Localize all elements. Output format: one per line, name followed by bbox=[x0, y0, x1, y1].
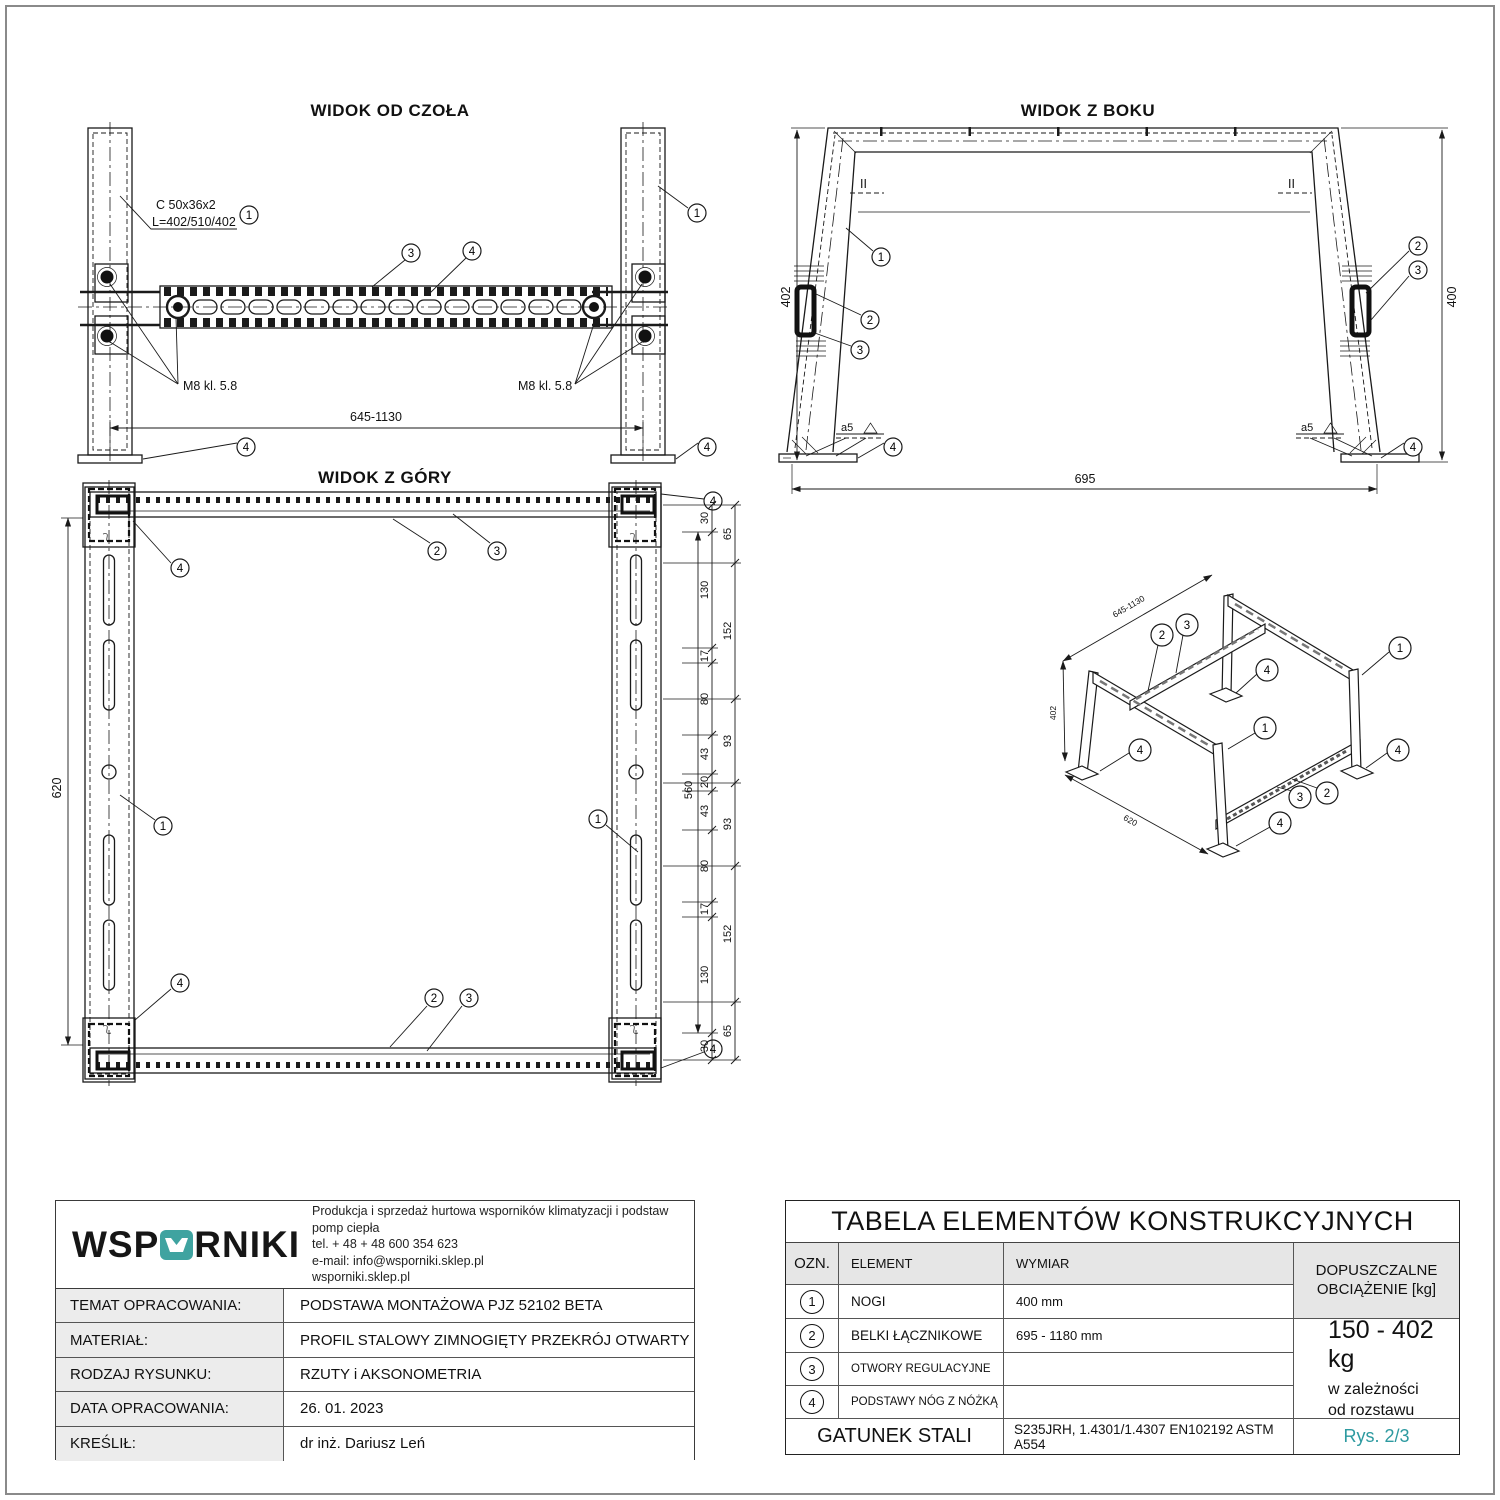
top-upper-beam bbox=[90, 492, 656, 517]
top-lower-beam bbox=[90, 1048, 656, 1073]
svg-text:4: 4 bbox=[1395, 745, 1402, 757]
load-note-1: w zależności bbox=[1328, 1380, 1419, 1401]
axo-rail-left bbox=[1093, 672, 1217, 756]
svg-text:4: 4 bbox=[1137, 745, 1144, 757]
svg-text:645-1130: 645-1130 bbox=[350, 410, 402, 424]
callout-2-side-right: 2 bbox=[1409, 237, 1427, 255]
front-view-title: WIDOK OD CZOŁA bbox=[310, 101, 469, 120]
svg-text:3: 3 bbox=[494, 546, 500, 558]
svg-text:4: 4 bbox=[469, 246, 476, 258]
svg-text:80: 80 bbox=[699, 693, 711, 705]
callout-2-top-upper: 2 bbox=[428, 542, 446, 560]
svg-text:II: II bbox=[860, 177, 867, 191]
side-frame bbox=[779, 128, 1419, 462]
front-view: WIDOK OD CZOŁA bbox=[78, 101, 716, 463]
steel-grade-value: S235JRH, 1.4301/1.4307 EN102192 ASTM A55… bbox=[1004, 1419, 1294, 1454]
ozn-cell-3: 3 bbox=[786, 1353, 839, 1386]
ozn-cell-1: 1 bbox=[786, 1285, 839, 1319]
svg-text:3: 3 bbox=[857, 345, 863, 357]
title-block-row-kreslil: KREŚLIŁ: dr inż. Dariusz Leń bbox=[56, 1427, 694, 1461]
logo-text-pre: WSP bbox=[72, 1224, 159, 1266]
callout-4-top-ne: 4 bbox=[704, 492, 722, 510]
ozn-badge-4: 4 bbox=[800, 1390, 824, 1414]
logo-bracket-icon bbox=[160, 1230, 193, 1260]
svg-text:93: 93 bbox=[722, 818, 734, 830]
axo-leg-front-left bbox=[1213, 743, 1228, 851]
svg-text:152: 152 bbox=[722, 622, 734, 640]
svg-text:3: 3 bbox=[1415, 265, 1421, 277]
sheet-number: Rys. 2/3 bbox=[1294, 1419, 1459, 1454]
top-left-rail bbox=[85, 480, 134, 1086]
svg-text:4: 4 bbox=[1410, 442, 1417, 454]
side-right-clamp bbox=[1340, 266, 1372, 356]
front-m8-left: M8 kl. 5.8 bbox=[110, 284, 237, 393]
callout-3-top-upper: 3 bbox=[488, 542, 506, 560]
callout-3-side-right: 3 bbox=[1409, 261, 1427, 279]
front-left-bolt-plates bbox=[95, 264, 128, 354]
row-label: RODZAJ RYSUNKU: bbox=[56, 1358, 284, 1391]
col-header-element: ELEMENT bbox=[839, 1243, 1004, 1285]
callout-1-top-right: 1 bbox=[589, 810, 607, 828]
side-parallel-mark-left: II bbox=[850, 177, 884, 193]
axo-foot-front-left bbox=[1207, 843, 1239, 857]
svg-text:2: 2 bbox=[867, 315, 873, 327]
svg-text:80: 80 bbox=[699, 860, 711, 872]
side-parallel-mark-right: II bbox=[1278, 177, 1312, 193]
svg-text:17: 17 bbox=[699, 650, 711, 662]
title-block-header: WSPRNIKI Produkcja i sprzedaż hurtowa ws… bbox=[56, 1201, 694, 1289]
ozn-badge-2: 2 bbox=[800, 1324, 824, 1348]
svg-text:4: 4 bbox=[177, 563, 184, 575]
front-connector-beam bbox=[78, 286, 670, 328]
row-label: KREŚLIŁ: bbox=[56, 1427, 284, 1461]
svg-text:1: 1 bbox=[1397, 643, 1403, 655]
svg-text:1: 1 bbox=[246, 210, 252, 222]
ozn-cell-4: 4 bbox=[786, 1386, 839, 1419]
row-value: RZUTY i AKSONOMETRIA bbox=[284, 1358, 694, 1391]
svg-text:1: 1 bbox=[694, 208, 700, 220]
svg-text:3: 3 bbox=[408, 248, 414, 260]
svg-text:4: 4 bbox=[704, 442, 711, 454]
svg-text:II: II bbox=[1288, 177, 1295, 191]
title-block-row-temat: TEMAT OPRACOWANIA: PODSTAWA MONTAŻOWA PJ… bbox=[56, 1289, 694, 1323]
svg-text:M8 kl. 5.8: M8 kl. 5.8 bbox=[183, 379, 237, 393]
top-foot-plates bbox=[83, 483, 661, 1082]
callout-1-top-left: 1 bbox=[154, 817, 172, 835]
axonometric-view: 645-1130 402 620 2 3 4 1 4 1 4 3 2 4 bbox=[1048, 575, 1411, 857]
elements-table: TABELA ELEMENTÓW KONSTRUKCYJNYCH OZN. EL… bbox=[785, 1200, 1460, 1455]
svg-text:130: 130 bbox=[699, 966, 711, 984]
row-label: DATA OPRACOWANIA: bbox=[56, 1392, 284, 1425]
svg-text:a5: a5 bbox=[841, 422, 853, 434]
wymiar-cell-2: 695 - 1180 mm bbox=[1004, 1319, 1294, 1353]
title-block-row-material: MATERIAŁ: PROFIL STALOWY ZIMNOGIĘTY PRZE… bbox=[56, 1323, 694, 1357]
callout-3-axo-top: 3 bbox=[1176, 614, 1198, 636]
callout-2-top-lower: 2 bbox=[425, 989, 443, 1007]
side-view: WIDOK Z BOKU II II bbox=[779, 101, 1459, 494]
callout-4-side-left: 4 bbox=[884, 438, 902, 456]
svg-text:43: 43 bbox=[699, 748, 711, 760]
axo-foot-front-right bbox=[1341, 765, 1373, 779]
top-right-rail bbox=[612, 480, 661, 1086]
top-dim-chains: 560 30 130 17 80 43 20 43 80 17 130 30 bbox=[663, 501, 741, 1064]
front-profile-label: C 50x36x2 L=402/510/402 bbox=[120, 196, 237, 229]
col-header-ozn: OZN. bbox=[786, 1243, 839, 1285]
side-left-clamp bbox=[794, 266, 826, 356]
svg-text:2: 2 bbox=[1159, 630, 1165, 642]
company-description: Produkcja i sprzedaż hurtowa wsporników … bbox=[312, 1203, 694, 1236]
row-label: MATERIAŁ: bbox=[56, 1323, 284, 1356]
callout-1-side: 1 bbox=[872, 248, 890, 266]
side-right-foot bbox=[1341, 454, 1419, 462]
svg-text:1: 1 bbox=[1262, 723, 1268, 735]
axo-leg-back-left bbox=[1078, 671, 1098, 774]
svg-text:65: 65 bbox=[722, 528, 734, 540]
callout-2-axo-bottom: 2 bbox=[1316, 782, 1338, 804]
svg-text:30: 30 bbox=[699, 512, 711, 524]
svg-text:2: 2 bbox=[434, 546, 440, 558]
svg-text:4: 4 bbox=[1264, 665, 1271, 677]
callout-1-axo-right: 1 bbox=[1389, 637, 1411, 659]
wymiar-cell-3 bbox=[1004, 1353, 1294, 1386]
svg-text:L=402/510/402: L=402/510/402 bbox=[152, 215, 236, 229]
wymiar-cell-4 bbox=[1004, 1386, 1294, 1419]
ozn-cell-2: 2 bbox=[786, 1319, 839, 1353]
callout-4-side-right: 4 bbox=[1404, 438, 1422, 456]
load-value: 150 - 402 kg bbox=[1328, 1316, 1459, 1374]
element-cell-1: NOGI bbox=[839, 1285, 1004, 1319]
axo-foot-back-right bbox=[1210, 688, 1242, 702]
svg-text:3: 3 bbox=[1184, 620, 1190, 632]
callout-3-side-left: 3 bbox=[851, 341, 869, 359]
svg-text:402: 402 bbox=[1048, 706, 1058, 720]
drawing-sheet: WIDOK OD CZOŁA bbox=[0, 0, 1500, 1500]
top-dim-left: 620 bbox=[50, 518, 83, 1045]
svg-text:400: 400 bbox=[1445, 287, 1459, 308]
row-value: dr inż. Dariusz Leń bbox=[284, 1427, 694, 1461]
svg-text:C 50x36x2: C 50x36x2 bbox=[156, 198, 216, 212]
callout-1-front-left: 1 bbox=[240, 206, 258, 224]
callout-1-front-right: 1 bbox=[688, 204, 706, 222]
callout-2-axo-top: 2 bbox=[1151, 624, 1173, 646]
svg-text:620: 620 bbox=[50, 778, 64, 799]
callout-4-axo-backleft: 4 bbox=[1129, 739, 1151, 761]
svg-text:a5: a5 bbox=[1301, 422, 1313, 434]
svg-text:4: 4 bbox=[1277, 818, 1284, 830]
callout-2-side-left: 2 bbox=[861, 311, 879, 329]
top-view: WIDOK Z GÓRY bbox=[50, 468, 741, 1086]
row-label: TEMAT OPRACOWANIA: bbox=[56, 1289, 284, 1322]
callout-3-axo-bottom: 3 bbox=[1289, 786, 1311, 808]
callout-4-front-foot-right: 4 bbox=[698, 438, 716, 456]
svg-text:2: 2 bbox=[431, 993, 437, 1005]
title-block: WSPRNIKI Produkcja i sprzedaż hurtowa ws… bbox=[55, 1200, 695, 1460]
callout-4-top-sw: 4 bbox=[171, 974, 189, 992]
callout-4-axo-frontleft: 4 bbox=[1269, 812, 1291, 834]
top-dim-inner: 560 bbox=[683, 781, 695, 799]
top-view-title: WIDOK Z GÓRY bbox=[318, 468, 452, 487]
svg-text:152: 152 bbox=[722, 925, 734, 943]
logo-text-post: RNIKI bbox=[194, 1224, 300, 1266]
side-dim-left: 402 bbox=[779, 128, 825, 460]
callout-4-front-beam: 4 bbox=[463, 242, 481, 260]
element-cell-2: BELKI ŁĄCZNIKOWE bbox=[839, 1319, 1004, 1353]
company-phone: tel. + 48 + 48 600 354 623 bbox=[312, 1236, 694, 1253]
svg-text:30: 30 bbox=[699, 1040, 711, 1052]
company-info: Produkcja i sprzedaż hurtowa wsporników … bbox=[300, 1203, 694, 1286]
svg-text:2: 2 bbox=[1324, 788, 1330, 800]
front-span-dimension: 645-1130 bbox=[110, 410, 643, 455]
ozn-badge-1: 1 bbox=[800, 1290, 824, 1314]
svg-text:4: 4 bbox=[177, 978, 184, 990]
svg-text:65: 65 bbox=[722, 1025, 734, 1037]
col-header-wymiar: WYMIAR bbox=[1004, 1243, 1294, 1285]
company-website: wsporniki.sklep.pl bbox=[312, 1269, 694, 1286]
svg-text:1: 1 bbox=[595, 814, 601, 826]
drawing-canvas: WIDOK OD CZOŁA bbox=[0, 0, 1500, 1190]
axo-leg-front-right bbox=[1349, 669, 1361, 773]
row-value: 26. 01. 2023 bbox=[284, 1392, 694, 1425]
svg-text:1: 1 bbox=[878, 252, 884, 264]
row-value: PROFIL STALOWY ZIMNOGIĘTY PRZEKRÓJ OTWAR… bbox=[284, 1323, 694, 1356]
svg-text:695: 695 bbox=[1075, 472, 1096, 486]
svg-text:20: 20 bbox=[699, 776, 711, 788]
side-view-title: WIDOK Z BOKU bbox=[1021, 101, 1155, 120]
row-value: PODSTAWA MONTAŻOWA PJZ 52102 BETA bbox=[284, 1289, 694, 1322]
elements-table-title: TABELA ELEMENTÓW KONSTRUKCYJNYCH bbox=[786, 1201, 1459, 1243]
ozn-badge-3: 3 bbox=[800, 1357, 824, 1381]
svg-text:93: 93 bbox=[722, 735, 734, 747]
side-weld-left: a5 bbox=[806, 422, 884, 456]
svg-text:17: 17 bbox=[699, 903, 711, 915]
svg-text:130: 130 bbox=[699, 581, 711, 599]
svg-text:4: 4 bbox=[243, 442, 250, 454]
svg-text:402: 402 bbox=[779, 287, 793, 308]
svg-text:1: 1 bbox=[160, 821, 166, 833]
company-logo: WSPRNIKI bbox=[56, 1224, 300, 1266]
callout-4-axo-frontright: 4 bbox=[1387, 739, 1409, 761]
callout-3-top-lower: 3 bbox=[460, 989, 478, 1007]
svg-text:3: 3 bbox=[466, 993, 472, 1005]
title-block-row-rodzaj: RODZAJ RYSUNKU: RZUTY i AKSONOMETRIA bbox=[56, 1358, 694, 1392]
steel-grade-label: GATUNEK STALI bbox=[786, 1419, 1004, 1454]
side-dim-bottom: 695 bbox=[792, 464, 1377, 494]
load-value-cell: 150 - 402 kg w zależności od rozstawu bbox=[1294, 1319, 1459, 1419]
callout-4-front-foot-left: 4 bbox=[237, 438, 255, 456]
svg-text:43: 43 bbox=[699, 805, 711, 817]
element-cell-4: PODSTAWY NÓG Z NÓŻKĄ bbox=[839, 1386, 1004, 1419]
callout-3-front: 3 bbox=[402, 244, 420, 262]
svg-text:3: 3 bbox=[1297, 792, 1303, 804]
company-email: e-mail: info@wsporniki.sklep.pl bbox=[312, 1253, 694, 1270]
wymiar-cell-1: 400 mm bbox=[1004, 1285, 1294, 1319]
svg-text:4: 4 bbox=[890, 442, 897, 454]
element-cell-3: OTWORY REGULACYJNE bbox=[839, 1353, 1004, 1386]
svg-text:2: 2 bbox=[1415, 241, 1421, 253]
callout-4-axo-backright: 4 bbox=[1256, 659, 1278, 681]
col-header-load: DOPUSZCZALNE OBCIĄŻENIE [kg] bbox=[1294, 1243, 1459, 1319]
title-block-row-data: DATA OPRACOWANIA: 26. 01. 2023 bbox=[56, 1392, 694, 1426]
callout-4-top-nw: 4 bbox=[171, 559, 189, 577]
callout-1-axo-mid: 1 bbox=[1254, 717, 1276, 739]
side-dim-right: 400 bbox=[1341, 128, 1459, 462]
svg-text:M8 kl. 5.8: M8 kl. 5.8 bbox=[518, 379, 572, 393]
